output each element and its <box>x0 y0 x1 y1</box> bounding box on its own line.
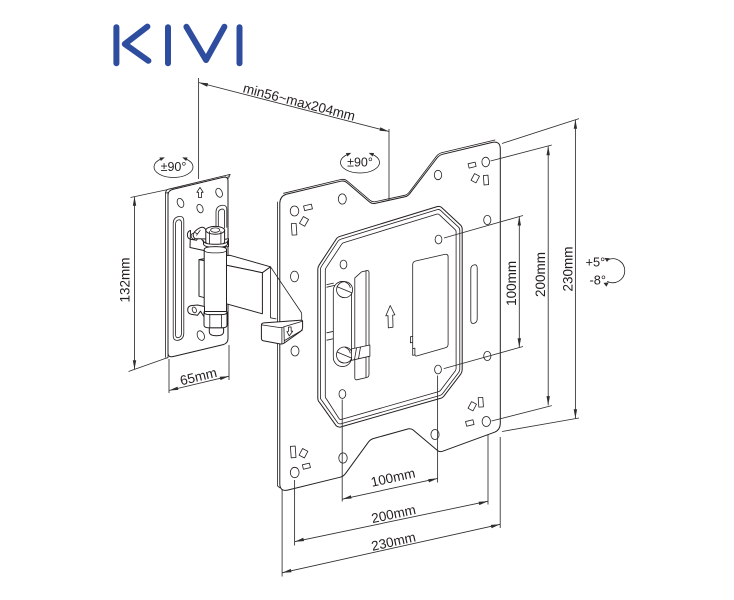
svg-text:±90°: ±90° <box>161 160 187 174</box>
svg-text:132mm: 132mm <box>118 257 133 302</box>
svg-text:230mm: 230mm <box>560 246 575 291</box>
svg-text:200mm: 200mm <box>533 252 548 297</box>
svg-text:-8°: -8° <box>590 273 607 288</box>
svg-text:±90°: ±90° <box>347 156 373 170</box>
svg-text:+5°: +5° <box>586 255 606 270</box>
svg-text:100mm: 100mm <box>504 261 519 306</box>
